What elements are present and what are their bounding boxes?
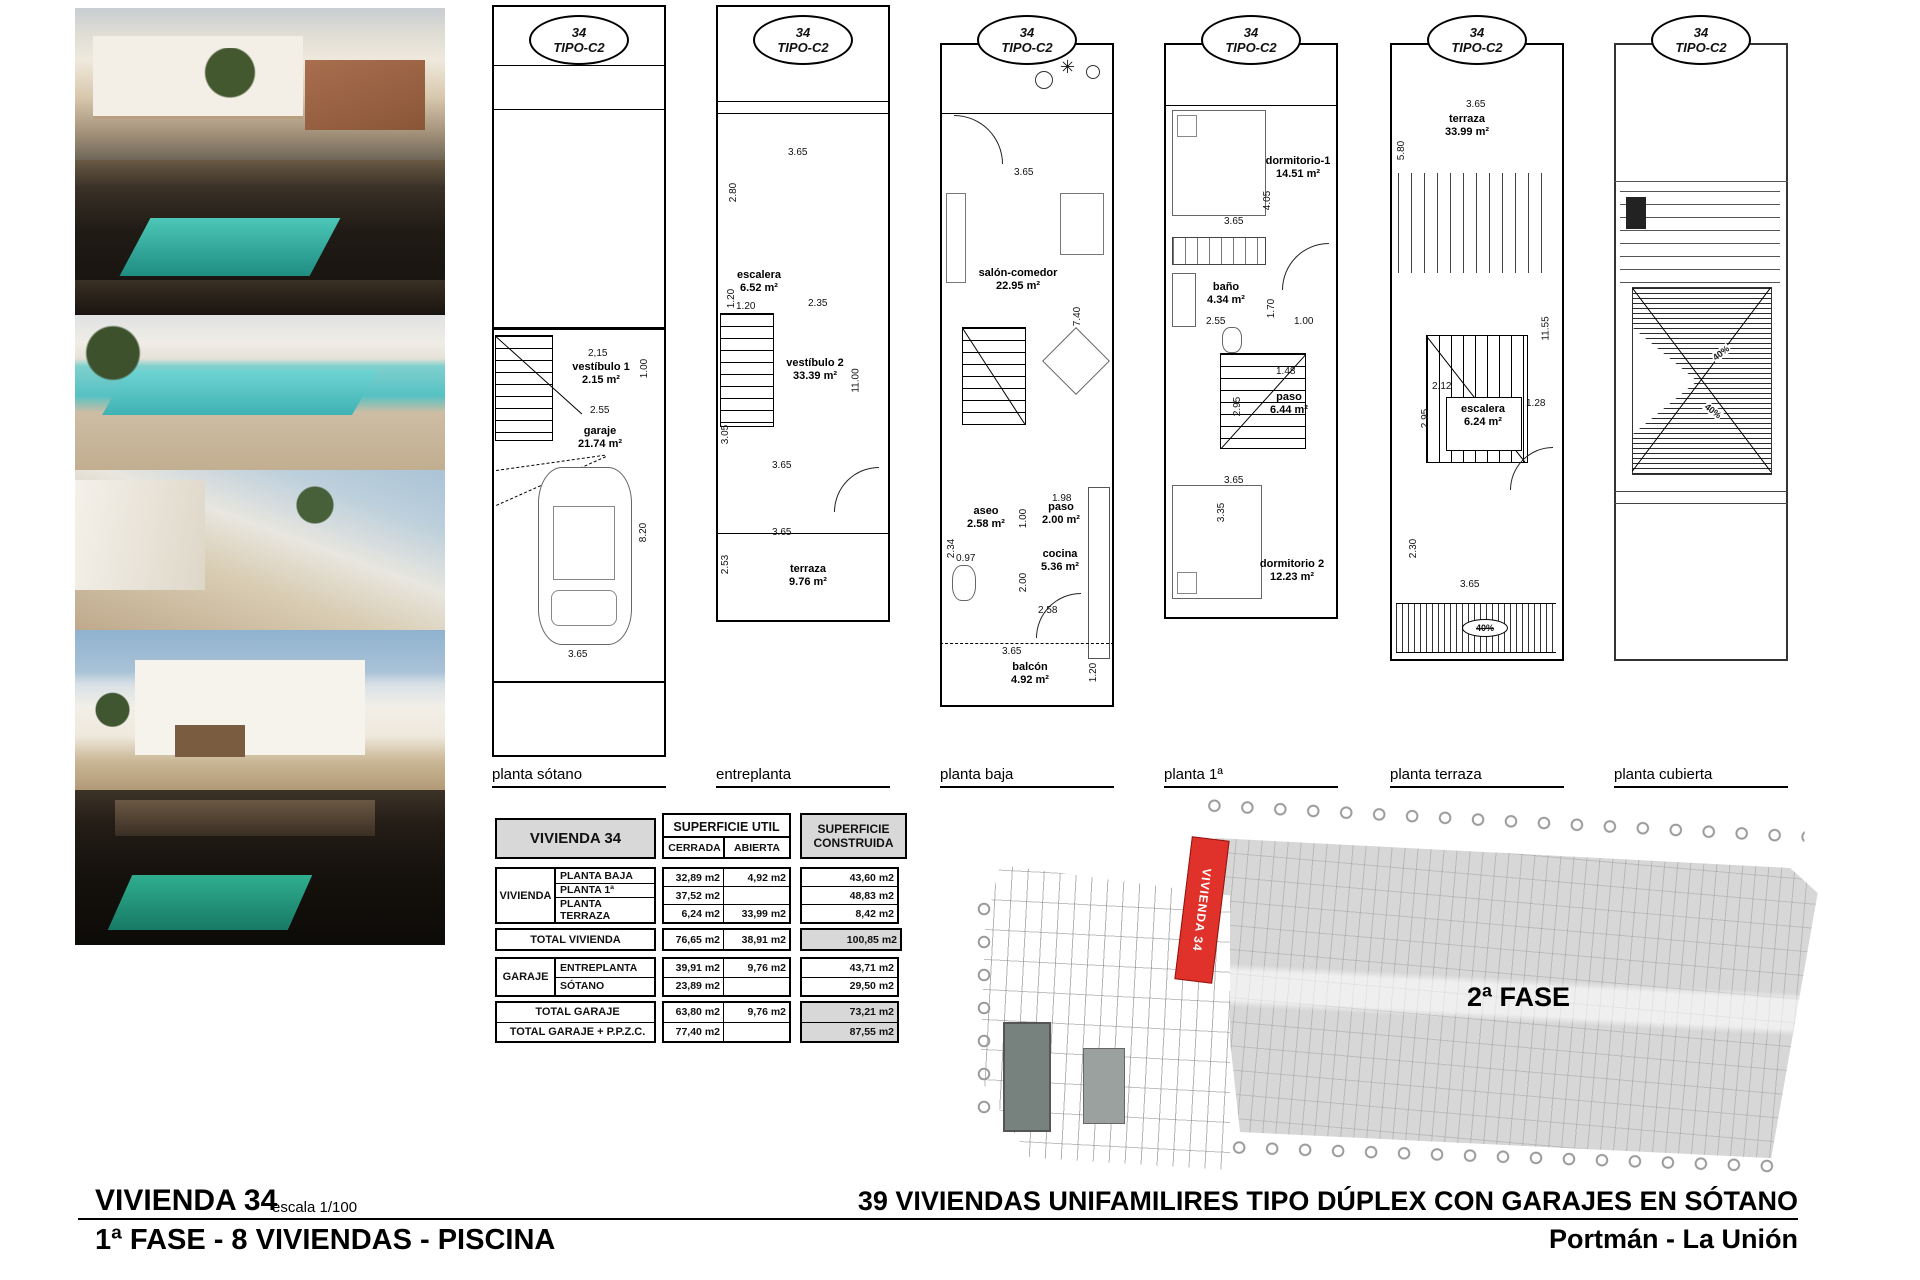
totals-garaje-construida: 73,21 m2 87,55 m2 xyxy=(800,1001,899,1043)
value-cell: 87,55 m2 xyxy=(802,1023,897,1042)
abierta-header-label: ABIERTA xyxy=(734,842,780,854)
row-name: ENTREPLANTA xyxy=(556,959,654,978)
wall-line xyxy=(492,109,666,110)
dim-label: 2.35 xyxy=(808,298,827,309)
badge-number: 34 xyxy=(796,25,810,40)
project-location: Portmán - La Unión xyxy=(1549,1224,1798,1255)
room-name: terraza xyxy=(1428,113,1506,126)
phase2-label: 2ª FASE xyxy=(1467,982,1570,1013)
group-label-vivienda: VIVIENDA xyxy=(497,869,556,922)
room-name: baño xyxy=(1196,281,1256,294)
dim-label: 1.20 xyxy=(1088,663,1099,682)
palm-tree-icon xyxy=(195,48,265,118)
room-label: balcón 4.92 m² xyxy=(990,661,1070,687)
badge-number: 34 xyxy=(1244,25,1258,40)
render-photo-terrace-day xyxy=(75,470,445,630)
totals-garaje-names: TOTAL GARAJE TOTAL GARAJE + P.P.Z.C. xyxy=(495,1001,656,1043)
value-cell: 43,60 m2 xyxy=(802,869,897,887)
vivienda34-highlight-label: VIVIENDA 34 xyxy=(1190,867,1214,952)
row-name: SÓTANO xyxy=(556,978,654,996)
pergola-beams xyxy=(1398,173,1554,273)
badge-type: TIPO-C2 xyxy=(777,40,828,55)
wall-line xyxy=(940,113,1114,114)
section-line xyxy=(492,681,666,683)
vivienda-construida-values: 43,60 m2 48,83 m2 8,42 m2 xyxy=(800,867,899,924)
dim-label: 3.65 xyxy=(568,649,587,660)
dim-label: 1.70 xyxy=(1266,299,1277,318)
pool-shape xyxy=(120,218,341,276)
room-area: 22.95 m² xyxy=(976,280,1060,293)
cerrada-header-label: CERRADA xyxy=(668,842,721,854)
row-name: PLANTA TERRAZA xyxy=(556,898,654,922)
room-label: terraza 33.99 m² xyxy=(1428,113,1506,139)
palm-tree-icon xyxy=(81,321,161,401)
value-cell: 100,85 m2 xyxy=(847,934,897,946)
garaje-util-values: 39,91 m2 9,76 m2 23,89 m2 xyxy=(662,957,791,997)
roof-shape xyxy=(305,60,425,130)
value-cell: 4,92 m2 xyxy=(724,869,789,887)
washbasin-glyph xyxy=(1172,273,1196,327)
wardrobe-glyph xyxy=(1172,237,1266,265)
wall-line xyxy=(1164,105,1338,106)
total-label: TOTAL GARAJE xyxy=(497,1003,654,1023)
plan-label-baja: planta baja xyxy=(940,766,1114,788)
value-cell xyxy=(724,1023,789,1042)
badge-number: 34 xyxy=(572,25,586,40)
value-cell: 63,80 m2 xyxy=(664,1003,724,1023)
slope-label: 40% xyxy=(1476,623,1494,633)
dim-label: 0.97 xyxy=(956,553,975,564)
room-name: balcón xyxy=(990,661,1070,674)
badge-type: TIPO-C2 xyxy=(1001,40,1052,55)
building-shape xyxy=(135,660,365,755)
room-name: paso xyxy=(1256,391,1322,404)
plan-label-sotano: planta sótano xyxy=(492,766,666,788)
vivienda-rows-names: VIVIENDA PLANTA BAJA PLANTA 1ª PLANTA TE… xyxy=(495,867,656,924)
eave-line xyxy=(1614,491,1788,492)
dim-label: 2.95 xyxy=(1232,397,1243,416)
room-area: 4.92 m² xyxy=(990,674,1070,687)
totals-garaje-values: 63,80 m2 9,76 m2 77,40 m2 xyxy=(662,1001,791,1043)
type-badge: 34 TIPO-C2 xyxy=(977,15,1077,65)
value-cell: 37,52 m2 xyxy=(664,887,724,905)
render-photo-pool-night-1 xyxy=(75,160,445,315)
deck-glow xyxy=(75,280,445,315)
table-title-box: VIVIENDA 34 xyxy=(495,818,656,859)
building-shape xyxy=(75,480,205,590)
value-cell: 32,89 m2 xyxy=(664,869,724,887)
value-cell: 8,42 m2 xyxy=(802,905,897,922)
dim-label: 4.05 xyxy=(1262,191,1273,210)
stairs-glyph xyxy=(962,327,1026,425)
render-photo-street-day xyxy=(75,8,445,160)
badge-type: TIPO-C2 xyxy=(1225,40,1276,55)
railing-line xyxy=(1614,181,1788,182)
sheet-title: VIVIENDA 34 xyxy=(95,1184,277,1218)
plan-label-terraza: planta terraza xyxy=(1390,766,1564,788)
room-name: dormitorio-1 xyxy=(1260,155,1336,168)
value-cell: 38,91 m2 xyxy=(724,930,789,949)
room-area: 4.34 m² xyxy=(1196,294,1256,307)
room-area: 14.51 m² xyxy=(1260,168,1336,181)
badge-number: 34 xyxy=(1470,25,1484,40)
room-label: aseo 2.58 m² xyxy=(958,505,1014,531)
plan-label-primera: planta 1ª xyxy=(1164,766,1338,788)
tree-row-top xyxy=(1205,796,1805,845)
garaje-construida-values: 43,71 m2 29,50 m2 xyxy=(800,957,899,997)
garaje-rows-names: GARAJE ENTREPLANTA SÓTANO xyxy=(495,957,656,997)
dim-label: 3.05 xyxy=(720,425,731,444)
dim-label: 1.48 xyxy=(1276,366,1295,377)
total-vivienda-construida: 100,85 m2 xyxy=(800,928,902,951)
badge-number: 34 xyxy=(1020,25,1034,40)
toilet-glyph xyxy=(1222,327,1242,353)
dim-label: 3.65 xyxy=(1014,167,1033,178)
type-badge: 34 TIPO-C2 xyxy=(1201,15,1301,65)
render-photo-facade-day xyxy=(75,630,445,790)
value-cell: 29,50 m2 xyxy=(802,978,897,996)
room-label: vestíbulo 2 33.39 m² xyxy=(774,357,856,383)
stair-diagonal xyxy=(962,328,1025,424)
chimney-box xyxy=(1626,197,1646,229)
room-name: dormitorio 2 xyxy=(1252,558,1332,571)
value-cell: 9,76 m2 xyxy=(724,959,789,978)
dim-label: 1.20 xyxy=(736,301,755,312)
garage-door-shape xyxy=(175,725,245,757)
dim-label: 2,15 xyxy=(588,348,607,359)
util-header-label: SUPERFICIE UTIL xyxy=(673,820,779,834)
type-badge: 34 TIPO-C2 xyxy=(753,15,853,65)
dim-label: 3.65 xyxy=(1002,646,1021,657)
room-area: 33.99 m² xyxy=(1428,126,1506,139)
dim-label: 7.40 xyxy=(1072,307,1083,326)
room-name: vestíbulo 2 xyxy=(774,357,856,370)
wc-glyph xyxy=(952,565,976,601)
sofa-glyph xyxy=(946,193,966,283)
dim-label: 2.00 xyxy=(1018,573,1029,592)
badge-type: TIPO-C2 xyxy=(553,40,604,55)
site-plan: VIVIENDA 34 2ª FASE xyxy=(975,810,1845,1175)
construida-header-label: SUPERFICIE CONSTRUIDA xyxy=(806,822,901,850)
dim-label: 3.65 xyxy=(1460,579,1479,590)
titleblock-rule xyxy=(78,1218,1798,1220)
dim-label: 11.55 xyxy=(1541,316,1552,340)
dim-label: 1.00 xyxy=(639,359,650,378)
plan-label-cubierta: planta cubierta xyxy=(1614,766,1788,788)
room-name: aseo xyxy=(958,505,1014,518)
dim-label: 3.65 xyxy=(1224,216,1243,227)
type-badge: 34 TIPO-C2 xyxy=(1651,15,1751,65)
roof-valley-wedge xyxy=(1633,328,1697,434)
wall-line xyxy=(492,327,666,330)
room-name: garaje xyxy=(560,425,640,438)
balcony-line xyxy=(940,643,1114,644)
lit-wall-shape xyxy=(115,800,375,836)
wall-line xyxy=(716,113,890,114)
dim-label: 3.65 xyxy=(772,527,791,538)
site-pergola-shape xyxy=(1083,1048,1125,1124)
room-area: 6.52 m² xyxy=(728,282,790,295)
value-cell: 48,83 m2 xyxy=(802,887,897,905)
type-badge: 34 TIPO-C2 xyxy=(1427,15,1527,65)
total-vivienda-values: 76,65 m2 38,91 m2 xyxy=(662,928,791,951)
plant-icon: ✳ xyxy=(1060,57,1075,78)
room-area: 2.15 m² xyxy=(570,374,632,387)
plan-sheet: 34 TIPO-C2 2,15 vestíbulo 1 2.15 m² 1.00… xyxy=(0,0,1920,1280)
value-cell: 43,71 m2 xyxy=(802,959,897,978)
sheet-subtitle: 1ª FASE - 8 VIVIENDAS - PISCINA xyxy=(95,1224,555,1257)
totals-garaje-name-col: TOTAL GARAJE TOTAL GARAJE + P.P.Z.C. xyxy=(497,1003,654,1041)
car-hood xyxy=(551,590,617,626)
palm-tree-icon xyxy=(85,685,140,740)
dim-label: 1.00 xyxy=(1294,316,1313,327)
dim-label: 3.65 xyxy=(1466,99,1485,110)
row-name: PLANTA BAJA xyxy=(556,869,654,884)
dim-label: 3.35 xyxy=(1216,503,1227,522)
group-label-garaje: GARAJE xyxy=(497,959,556,995)
roof-hatch: 40% 40% xyxy=(1632,287,1772,475)
room-name: escalera xyxy=(728,269,790,282)
garaje-row-names: ENTREPLANTA SÓTANO xyxy=(556,959,654,995)
room-label: baño 4.34 m² xyxy=(1196,281,1256,307)
project-title: 39 VIVIENDAS UNIFAMILIRES TIPO DÚPLEX CO… xyxy=(858,1186,1798,1217)
room-area: 6.24 m² xyxy=(1448,416,1518,429)
value-cell: 73,21 m2 xyxy=(802,1003,897,1023)
room-area: 2.00 m² xyxy=(1032,514,1090,527)
dim-label: 2.55 xyxy=(590,405,609,416)
dim-label: 3.65 xyxy=(772,460,791,471)
wall-line xyxy=(492,65,666,66)
sheet-scale: escala 1/100 xyxy=(272,1199,357,1216)
palm-tree-icon xyxy=(285,478,345,538)
value-cell: 9,76 m2 xyxy=(724,1003,789,1023)
slope-marker: 40% xyxy=(1462,619,1508,637)
dim-label: 2.80 xyxy=(728,183,739,202)
total-label: TOTAL VIVIENDA xyxy=(530,934,620,946)
room-area: 12.23 m² xyxy=(1252,571,1332,584)
room-label: dormitorio-1 14.51 m² xyxy=(1260,155,1336,181)
dim-label: 2.55 xyxy=(1206,316,1225,327)
room-area: 6.44 m² xyxy=(1256,404,1322,417)
wall-line xyxy=(716,101,890,102)
sideboard-glyph xyxy=(1060,193,1104,255)
pillow-glyph xyxy=(1177,572,1197,594)
room-name: cocina xyxy=(1030,548,1090,561)
stairs-glyph xyxy=(720,313,774,427)
room-name: escalera xyxy=(1448,403,1518,416)
bed-glyph xyxy=(1172,110,1266,216)
table-header-cerrada: CERRADA xyxy=(662,836,727,859)
value-cell: 6,24 m2 xyxy=(664,905,724,922)
room-label: dormitorio 2 12.23 m² xyxy=(1252,558,1332,584)
badge-number: 34 xyxy=(1694,25,1708,40)
dim-label: 2.12 xyxy=(1432,381,1451,392)
dim-label: 11.00 xyxy=(851,368,862,392)
room-area: 21.74 m² xyxy=(560,438,640,451)
dim-label: 2.53 xyxy=(720,555,731,574)
type-badge: 34 TIPO-C2 xyxy=(529,15,629,65)
room-label: salón-comedor 22.95 m² xyxy=(976,267,1060,293)
dim-label: 2.95 xyxy=(1420,409,1431,428)
kitchen-counter-glyph xyxy=(1088,487,1110,659)
room-area: 9.76 m² xyxy=(768,576,848,589)
room-label: paso 6.44 m² xyxy=(1256,391,1322,417)
table-header-abierta: ABIERTA xyxy=(723,836,791,859)
value-cell: 23,89 m2 xyxy=(664,978,724,996)
room-area: 5.36 m² xyxy=(1030,561,1090,574)
tree-row-left xyxy=(975,900,993,1120)
slope-label: 40% xyxy=(1710,343,1732,363)
render-photo-pool-day xyxy=(75,315,445,470)
dim-label: 1.28 xyxy=(1526,398,1545,409)
site-pool-shape xyxy=(1003,1022,1051,1132)
value-cell xyxy=(724,978,789,996)
badge-type: TIPO-C2 xyxy=(1675,40,1726,55)
room-label: garaje 21.74 m² xyxy=(560,425,640,451)
room-label: cocina 5.36 m² xyxy=(1030,548,1090,574)
total-vivienda-name: TOTAL VIVIENDA xyxy=(495,928,656,951)
room-label: escalera 6.24 m² xyxy=(1448,403,1518,429)
vivienda-row-names: PLANTA BAJA PLANTA 1ª PLANTA TERRAZA xyxy=(556,869,654,922)
room-name: terraza xyxy=(768,563,848,576)
value-cell: 76,65 m2 xyxy=(664,930,724,949)
eave-line xyxy=(1614,503,1788,504)
dim-label: 2.30 xyxy=(1408,539,1419,558)
table-header-construida: SUPERFICIE CONSTRUIDA xyxy=(800,813,907,859)
badge-type: TIPO-C2 xyxy=(1451,40,1502,55)
plant-icon xyxy=(1086,65,1100,79)
pillow-glyph xyxy=(1177,115,1197,137)
room-area: 2.58 m² xyxy=(958,518,1014,531)
plant-icon xyxy=(1035,71,1053,89)
stairs-glyph xyxy=(495,335,553,441)
pool-shape xyxy=(108,875,312,930)
room-name: salón-comedor xyxy=(976,267,1060,280)
dim-label: 3.65 xyxy=(788,147,807,158)
room-area: 33.39 m² xyxy=(774,370,856,383)
room-label: vestíbulo 1 2.15 m² xyxy=(570,361,632,387)
vivienda-util-values: 32,89 m2 4,92 m2 37,52 m2 6,24 m2 33,99 … xyxy=(662,867,791,924)
render-photo-pool-night-2 xyxy=(75,790,445,945)
wall-line xyxy=(716,533,890,534)
dim-label: 3.65 xyxy=(1224,475,1243,486)
room-label: paso 2.00 m² xyxy=(1032,501,1090,527)
table-title: VIVIENDA 34 xyxy=(530,830,621,847)
value-cell: 39,91 m2 xyxy=(664,959,724,978)
value-cell: 33,99 m2 xyxy=(724,905,789,922)
dim-label: 5.80 xyxy=(1396,141,1407,160)
room-label: terraza 9.76 m² xyxy=(768,563,848,589)
total-label: TOTAL GARAJE + P.P.Z.C. xyxy=(497,1023,654,1042)
dim-label: 1.00 xyxy=(1018,509,1029,528)
room-name: vestíbulo 1 xyxy=(570,361,632,374)
dim-label: 2.58 xyxy=(1038,605,1057,616)
room-label: escalera 6.52 m² xyxy=(728,269,790,295)
row-name: PLANTA 1ª xyxy=(556,884,654,899)
plan-label-entreplanta: entreplanta xyxy=(716,766,890,788)
dim-label: 8.20 xyxy=(638,523,649,542)
value-cell xyxy=(724,887,789,905)
car-glyph xyxy=(538,467,632,645)
room-name: paso xyxy=(1032,501,1090,514)
car-cabin xyxy=(553,506,615,580)
value-cell: 77,40 m2 xyxy=(664,1023,724,1042)
